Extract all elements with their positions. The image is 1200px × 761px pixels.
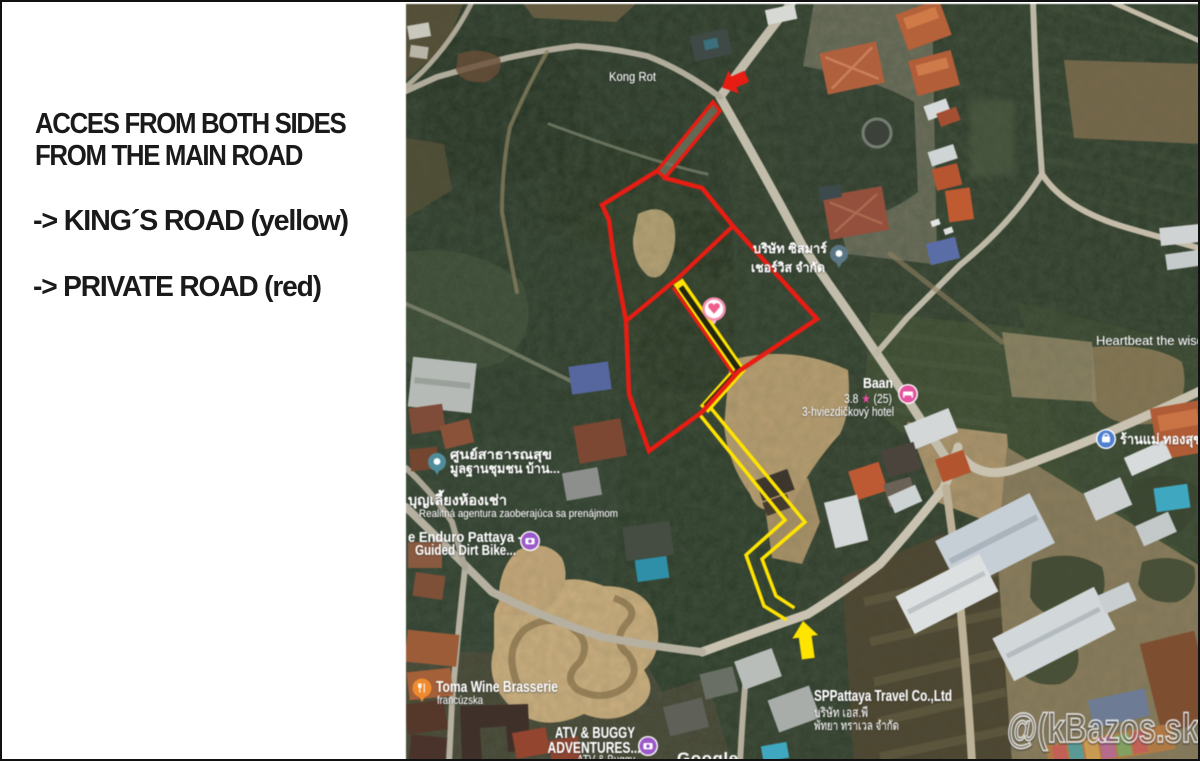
svg-text:บุญเลี้ยงห้องเช่า: บุญเลี้ยงห้องเช่า xyxy=(408,489,507,509)
svg-text:Google: Google xyxy=(677,749,739,761)
svg-text:Kong Rot: Kong Rot xyxy=(609,69,656,84)
svg-text:Guided Dirt Bike...: Guided Dirt Bike... xyxy=(415,543,516,559)
svg-text:3-hviezdičkový hotel: 3-hviezdičkový hotel xyxy=(802,404,894,419)
svg-text:พัทยา ทราเวล จำกัด: พัทยา ทราเวล จำกัด xyxy=(814,718,899,733)
svg-text:ATV & Buggy: ATV & Buggy xyxy=(577,752,635,761)
svg-text:Realitná agentura zaoberajúca: Realitná agentura zaoberajúca sa prenájm… xyxy=(419,508,618,520)
svg-text:เชอร์วิส จำกัด: เชอร์วิส จำกัด xyxy=(751,260,825,275)
svg-text:บริษัท ซิสมาร์: บริษัท ซิสมาร์ xyxy=(753,241,827,256)
svg-text:Baan: Baan xyxy=(863,375,893,392)
svg-text:@(kBazos.sk: @(kBazos.sk xyxy=(1007,705,1199,751)
svg-text:SPPattaya Travel Co.,Ltd: SPPattaya Travel Co.,Ltd xyxy=(814,688,952,705)
svg-text:Heartbeat the wisd: Heartbeat the wisd xyxy=(1096,333,1200,348)
svg-text:francúzska: francúzska xyxy=(437,693,483,707)
svg-text:ร้านแม่ ทองสุข: ร้านแม่ ทองสุข xyxy=(1120,431,1200,448)
svg-text:มูลฐานชุมชน บ้าน...: มูลฐานชุมชน บ้าน... xyxy=(450,461,560,478)
